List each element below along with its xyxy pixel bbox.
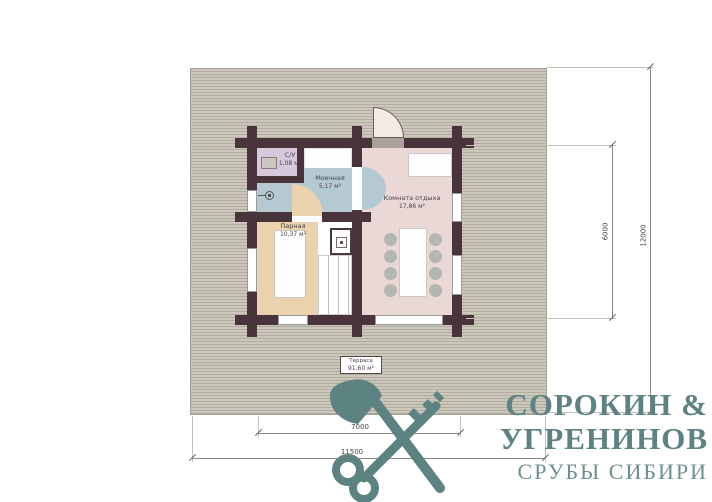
wall-right-1	[452, 148, 462, 193]
log-stub	[247, 126, 257, 138]
chair	[429, 284, 442, 297]
room-name: Парная	[268, 223, 318, 231]
room-label-lounge: Комната отдыха 17,86 м²	[378, 195, 446, 210]
logo-line-1: СОРОКИН &	[2, 389, 708, 420]
room-area: 91,60 м²	[341, 365, 381, 372]
log-stub	[452, 325, 462, 337]
wall-bottom-3	[443, 315, 462, 325]
extension-line	[466, 318, 616, 319]
logo-line-2: УГРЕНИНОВ	[2, 423, 708, 454]
floor-plan-page: С/У 1,08 м² Моечная 5,17 м² Парная 10,37…	[0, 0, 712, 502]
room-area: 1,08 м²	[272, 160, 308, 167]
wall-steam-right	[322, 212, 362, 222]
room-area: 17,86 м²	[378, 203, 446, 210]
wall-lounge-main	[352, 210, 362, 315]
room-area: 5,17 м²	[303, 183, 357, 190]
lounge-cabinet	[408, 153, 452, 177]
wall-left-3	[247, 292, 257, 315]
log-stub	[235, 315, 247, 325]
window-left-1	[247, 190, 257, 212]
extension-line	[547, 67, 654, 68]
window-bottom-1	[278, 315, 308, 325]
logo-line-3: СРУБЫ СИБИРИ	[2, 461, 708, 483]
window-left-2	[247, 248, 257, 292]
chair	[429, 250, 442, 263]
log-stub	[462, 315, 474, 325]
chair	[384, 250, 397, 263]
log-stub	[352, 325, 362, 337]
log-stub	[247, 325, 257, 337]
dim-line-6000	[612, 145, 613, 318]
window-bottom-2	[375, 315, 443, 325]
extension-line	[466, 145, 616, 146]
chair	[384, 233, 397, 246]
room-label-su: С/У 1,08 м²	[272, 152, 308, 167]
window-right-2	[452, 255, 462, 295]
room-area: 10,37 м²	[268, 231, 318, 238]
wall-bottom-2	[308, 315, 375, 325]
log-stub	[452, 126, 462, 138]
log-stub	[362, 212, 371, 222]
chair	[429, 267, 442, 280]
dim-line-12000	[650, 67, 651, 412]
wall-bottom-1	[247, 315, 278, 325]
closet-area	[304, 148, 352, 169]
stove-icon	[330, 228, 352, 255]
steps	[318, 255, 352, 315]
room-name: Терраса	[341, 358, 381, 365]
wall-left-1	[247, 148, 257, 190]
wall-top-right	[404, 138, 462, 148]
log-stub	[235, 138, 247, 148]
chair	[429, 233, 442, 246]
log-stub	[235, 212, 247, 222]
shower-dot	[268, 194, 271, 197]
wall-right-2	[452, 222, 462, 255]
lounge-table	[399, 228, 427, 297]
entry-threshold	[372, 138, 404, 148]
log-stub	[352, 126, 362, 138]
window-right-1	[452, 193, 462, 222]
wall-lounge-top	[352, 138, 362, 167]
dim-label-12000: 12000	[641, 216, 648, 256]
chair	[384, 267, 397, 280]
steam-bench	[274, 230, 306, 298]
room-label-washroom: Моечная 5,17 м²	[303, 175, 357, 190]
room-name: С/У	[272, 152, 308, 160]
chair	[384, 284, 397, 297]
dim-label-6000: 6000	[603, 212, 610, 252]
wall-su-bottom	[257, 176, 297, 183]
room-name: Моечная	[303, 175, 357, 183]
wall-right-3	[452, 295, 462, 315]
log-stub	[462, 138, 474, 148]
stove-dot	[340, 241, 343, 244]
wall-steam-left	[247, 212, 292, 222]
room-label-steam: Парная 10,37 м²	[268, 223, 318, 238]
room-label-terrace: Терраса 91,60 м²	[340, 356, 382, 374]
room-name: Комната отдыха	[378, 195, 446, 203]
